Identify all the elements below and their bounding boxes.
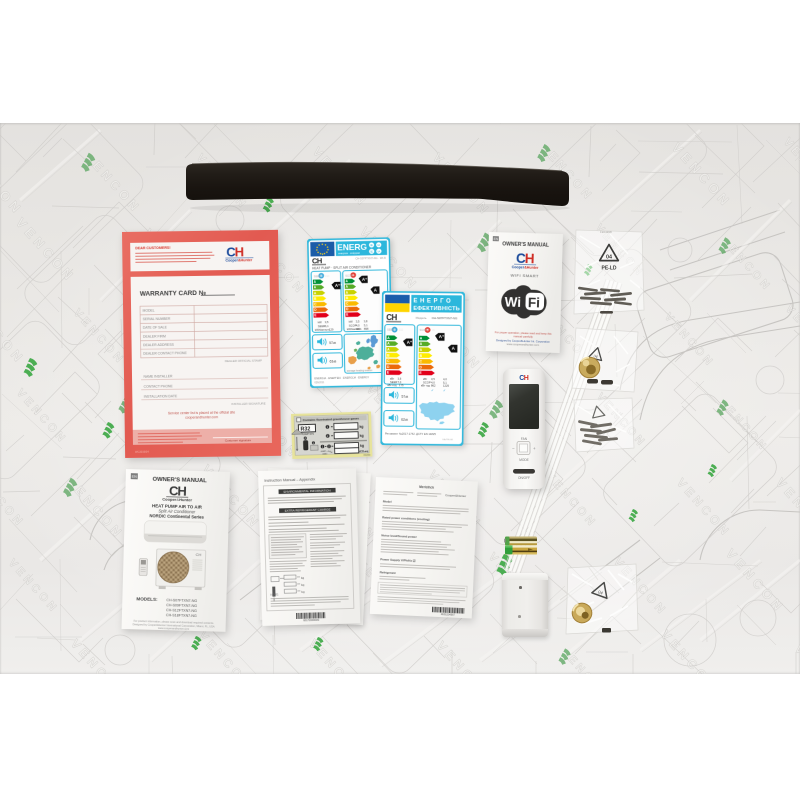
svg-text:ENCON: ENCON bbox=[726, 243, 774, 294]
svg-text:CH: CH bbox=[519, 375, 529, 382]
svg-text:VENCON: VENCON bbox=[71, 307, 127, 367]
svg-text:980: 980 bbox=[356, 327, 361, 331]
svg-text:A: A bbox=[374, 287, 377, 292]
svg-text:MODELS:: MODELS: bbox=[136, 596, 158, 602]
svg-text:CH-S12FTXN7-NG: CH-S12FTXN7-NG bbox=[166, 608, 197, 613]
svg-text:UA.TR.001: UA.TR.001 bbox=[442, 438, 454, 441]
svg-text:3,8: 3,8 bbox=[364, 319, 368, 323]
svg-text:NAME INSTALLER: NAME INSTALLER bbox=[143, 374, 173, 378]
svg-text:DATE OF SALE: DATE OF SALE bbox=[143, 326, 168, 330]
svg-text:DEALER FIRM: DEALER FIRM bbox=[143, 334, 166, 338]
svg-text:EN: EN bbox=[132, 475, 138, 479]
svg-text:NOTE:: NOTE: bbox=[270, 592, 279, 596]
svg-text:OWNER'S MANUAL: OWNER'S MANUAL bbox=[502, 241, 549, 248]
svg-text:62dB: 62dB bbox=[401, 418, 408, 422]
svg-text:CH: CH bbox=[516, 251, 535, 267]
svg-text:Refrigerant: Refrigerant bbox=[380, 570, 396, 575]
svg-text:✓: ✓ bbox=[431, 389, 434, 393]
svg-text:CH: CH bbox=[196, 552, 202, 557]
svg-text:CH-S07FTXN7-NG · Wi-Fi: CH-S07FTXN7-NG · Wi-Fi bbox=[355, 256, 386, 261]
svg-text:ENERG: ENERG bbox=[337, 242, 367, 253]
svg-text:tCO₂eq: tCO₂eq bbox=[359, 449, 368, 453]
svg-text:IA: IA bbox=[377, 243, 380, 247]
svg-text:E: E bbox=[346, 313, 348, 317]
svg-text:kW: kW bbox=[318, 320, 322, 324]
svg-text:862: 862 bbox=[431, 384, 436, 388]
svg-text:кВт·год: кВт·год bbox=[387, 383, 396, 387]
svg-text:VENCON: VENCON bbox=[13, 215, 79, 285]
svg-text:1904308: 1904308 bbox=[600, 230, 612, 234]
svg-text:ЕФЕКТИВНІСТЬ: ЕФЕКТИВНІСТЬ bbox=[413, 306, 460, 312]
svg-text:VENCON: VENCON bbox=[0, 468, 27, 530]
svg-text:PE-LD: PE-LD bbox=[602, 266, 617, 272]
svg-text:−: − bbox=[512, 446, 515, 451]
svg-text:04: 04 bbox=[606, 254, 612, 260]
svg-text:kg: kg bbox=[359, 425, 363, 429]
svg-text:SCOP: SCOP bbox=[345, 273, 353, 277]
svg-text:ENCON: ENCON bbox=[723, 404, 770, 454]
svg-text:INSTALLATION DATE: INSTALLATION DATE bbox=[144, 394, 178, 398]
svg-text:WARRANTY CARD №: WARRANTY CARD № bbox=[140, 290, 206, 298]
svg-text:kWh/annum: kWh/annum bbox=[315, 328, 330, 332]
svg-text:ЕНЕРГО: ЕНЕРГО bbox=[413, 298, 453, 304]
svg-text:1000: 1000 bbox=[322, 453, 328, 455]
svg-text:+: + bbox=[533, 446, 536, 451]
svg-text:ON/OFF: ON/OFF bbox=[518, 476, 530, 480]
svg-text:129: 129 bbox=[329, 328, 334, 332]
svg-text:626/2011: 626/2011 bbox=[314, 381, 325, 384]
svg-text:кВт·год: кВт·год bbox=[421, 384, 430, 388]
svg-text:66172000009: 66172000009 bbox=[303, 618, 320, 622]
svg-text:SEER: SEER bbox=[314, 274, 321, 278]
svg-text:1904300: 1904300 bbox=[363, 455, 370, 457]
svg-text:GWP 675: GWP 675 bbox=[303, 432, 315, 436]
svg-text:175: 175 bbox=[399, 383, 404, 387]
svg-text:EN: EN bbox=[494, 237, 499, 241]
svg-text:CH-S09FTXN7-NG: CH-S09FTXN7-NG bbox=[166, 603, 197, 608]
svg-text:Cooper&Hunter: Cooper&Hunter bbox=[225, 258, 252, 262]
svg-text:DEAR CUSTOMERS!: DEAR CUSTOMERS! bbox=[135, 246, 170, 250]
svg-text:CH-S07FTXN7-NG: CH-S07FTXN7-NG bbox=[432, 316, 458, 320]
svg-text:Customer signature: Customer signature bbox=[225, 438, 252, 442]
svg-text:SCOP: SCOP bbox=[420, 328, 428, 332]
svg-text:57dB: 57dB bbox=[329, 341, 336, 345]
svg-text:VENCON: VENCON bbox=[306, 637, 367, 674]
svg-text:kg: kg bbox=[360, 444, 364, 448]
svg-text:VENCON: VENCON bbox=[781, 135, 800, 197]
svg-text:CONTACT PHONE: CONTACT PHONE bbox=[144, 384, 174, 388]
svg-text:MODEL: MODEL bbox=[143, 309, 155, 313]
svg-text:IA: IA bbox=[377, 249, 380, 253]
svg-text:Model: Model bbox=[383, 499, 392, 503]
svg-text:R32: R32 bbox=[300, 426, 310, 432]
svg-text:Регламент №2017-1742. ДСТУ EN: Регламент №2017-1742. ДСТУ EN 14825 bbox=[385, 432, 436, 437]
svg-text:E: E bbox=[314, 314, 316, 318]
svg-text:kg: kg bbox=[360, 434, 364, 438]
svg-text:VENCON: VENCON bbox=[0, 148, 26, 218]
svg-text:=: = bbox=[331, 450, 333, 454]
svg-text:CH-S07FTXN7-NG: CH-S07FTXN7-NG bbox=[166, 598, 197, 603]
svg-text:6,1: 6,1 bbox=[325, 324, 329, 328]
svg-text:VENCON: VENCON bbox=[0, 297, 28, 367]
svg-text:ENCON: ENCON bbox=[565, 653, 612, 674]
svg-text:CH-S18FTXN7-NG: CH-S18FTXN7-NG bbox=[166, 613, 197, 618]
svg-text:MODE: MODE bbox=[519, 458, 529, 462]
svg-text:Модель: Модель bbox=[416, 316, 427, 320]
svg-text:A⁺: A⁺ bbox=[407, 340, 413, 345]
svg-text:VENCON: VENCON bbox=[773, 475, 800, 543]
svg-text:average heating season: average heating season bbox=[347, 369, 373, 373]
svg-text:□ □: □ □ bbox=[399, 329, 403, 332]
svg-text:SERIAL NUMBER: SERIAL NUMBER bbox=[143, 317, 171, 321]
svg-text:DEALER CONTACT PHONE: DEALER CONTACT PHONE bbox=[143, 351, 187, 356]
svg-text:VENCON: VENCON bbox=[14, 387, 69, 447]
svg-text:IE: IE bbox=[370, 243, 373, 247]
svg-text:WC2019/04: WC2019/04 bbox=[135, 450, 149, 454]
svg-text:1225: 1225 bbox=[443, 384, 450, 388]
svg-text:kg: kg bbox=[301, 576, 305, 580]
svg-text:57dB: 57dB bbox=[401, 395, 408, 399]
svg-text:63dB: 63dB bbox=[330, 359, 337, 363]
svg-text:5,1: 5,1 bbox=[364, 323, 368, 327]
svg-text:kW: kW bbox=[349, 320, 353, 324]
svg-text:4,0: 4,0 bbox=[356, 323, 360, 327]
svg-text:kg: kg bbox=[301, 590, 305, 594]
svg-text:VENCON: VENCON bbox=[0, 643, 6, 674]
svg-text:3,5: 3,5 bbox=[325, 320, 329, 324]
svg-text:A⁺: A⁺ bbox=[439, 334, 445, 339]
svg-text:CH: CH bbox=[386, 313, 397, 322]
svg-text:3,5: 3,5 bbox=[356, 319, 360, 323]
svg-text:898: 898 bbox=[364, 327, 369, 331]
svg-text:kg: kg bbox=[301, 583, 305, 587]
svg-text:SEER: SEER bbox=[387, 328, 394, 332]
svg-text:DEALER OFFICIAL STAMP: DEALER OFFICIAL STAMP bbox=[225, 359, 262, 364]
svg-text:FAN: FAN bbox=[521, 437, 528, 441]
svg-text:✓: ✓ bbox=[443, 389, 446, 393]
svg-text:VENCON: VENCON bbox=[196, 629, 255, 674]
svg-text:ENCON: ENCON bbox=[72, 483, 127, 542]
svg-text:INSTALLER SIGNATURE: INSTALLER SIGNATURE bbox=[231, 402, 265, 406]
svg-text:CH: CH bbox=[226, 244, 244, 259]
svg-text:İE: İE bbox=[370, 248, 373, 253]
svg-text:VENCON: VENCON bbox=[669, 140, 735, 211]
svg-text:Cooper&Hunter: Cooper&Hunter bbox=[162, 497, 192, 503]
svg-text:A⁺⁺: A⁺⁺ bbox=[335, 283, 343, 288]
svg-text:cooperandhunter.com: cooperandhunter.com bbox=[185, 415, 218, 419]
svg-text:енергия · ενέργεια: енергия · ενέργεια bbox=[338, 251, 360, 255]
svg-text:Mericihck: Mericihck bbox=[419, 485, 434, 490]
svg-text:A⁺: A⁺ bbox=[362, 277, 367, 282]
svg-text:□ □: □ □ bbox=[325, 275, 329, 278]
svg-text:DEALER ADDRESS: DEALER ADDRESS bbox=[143, 343, 175, 347]
